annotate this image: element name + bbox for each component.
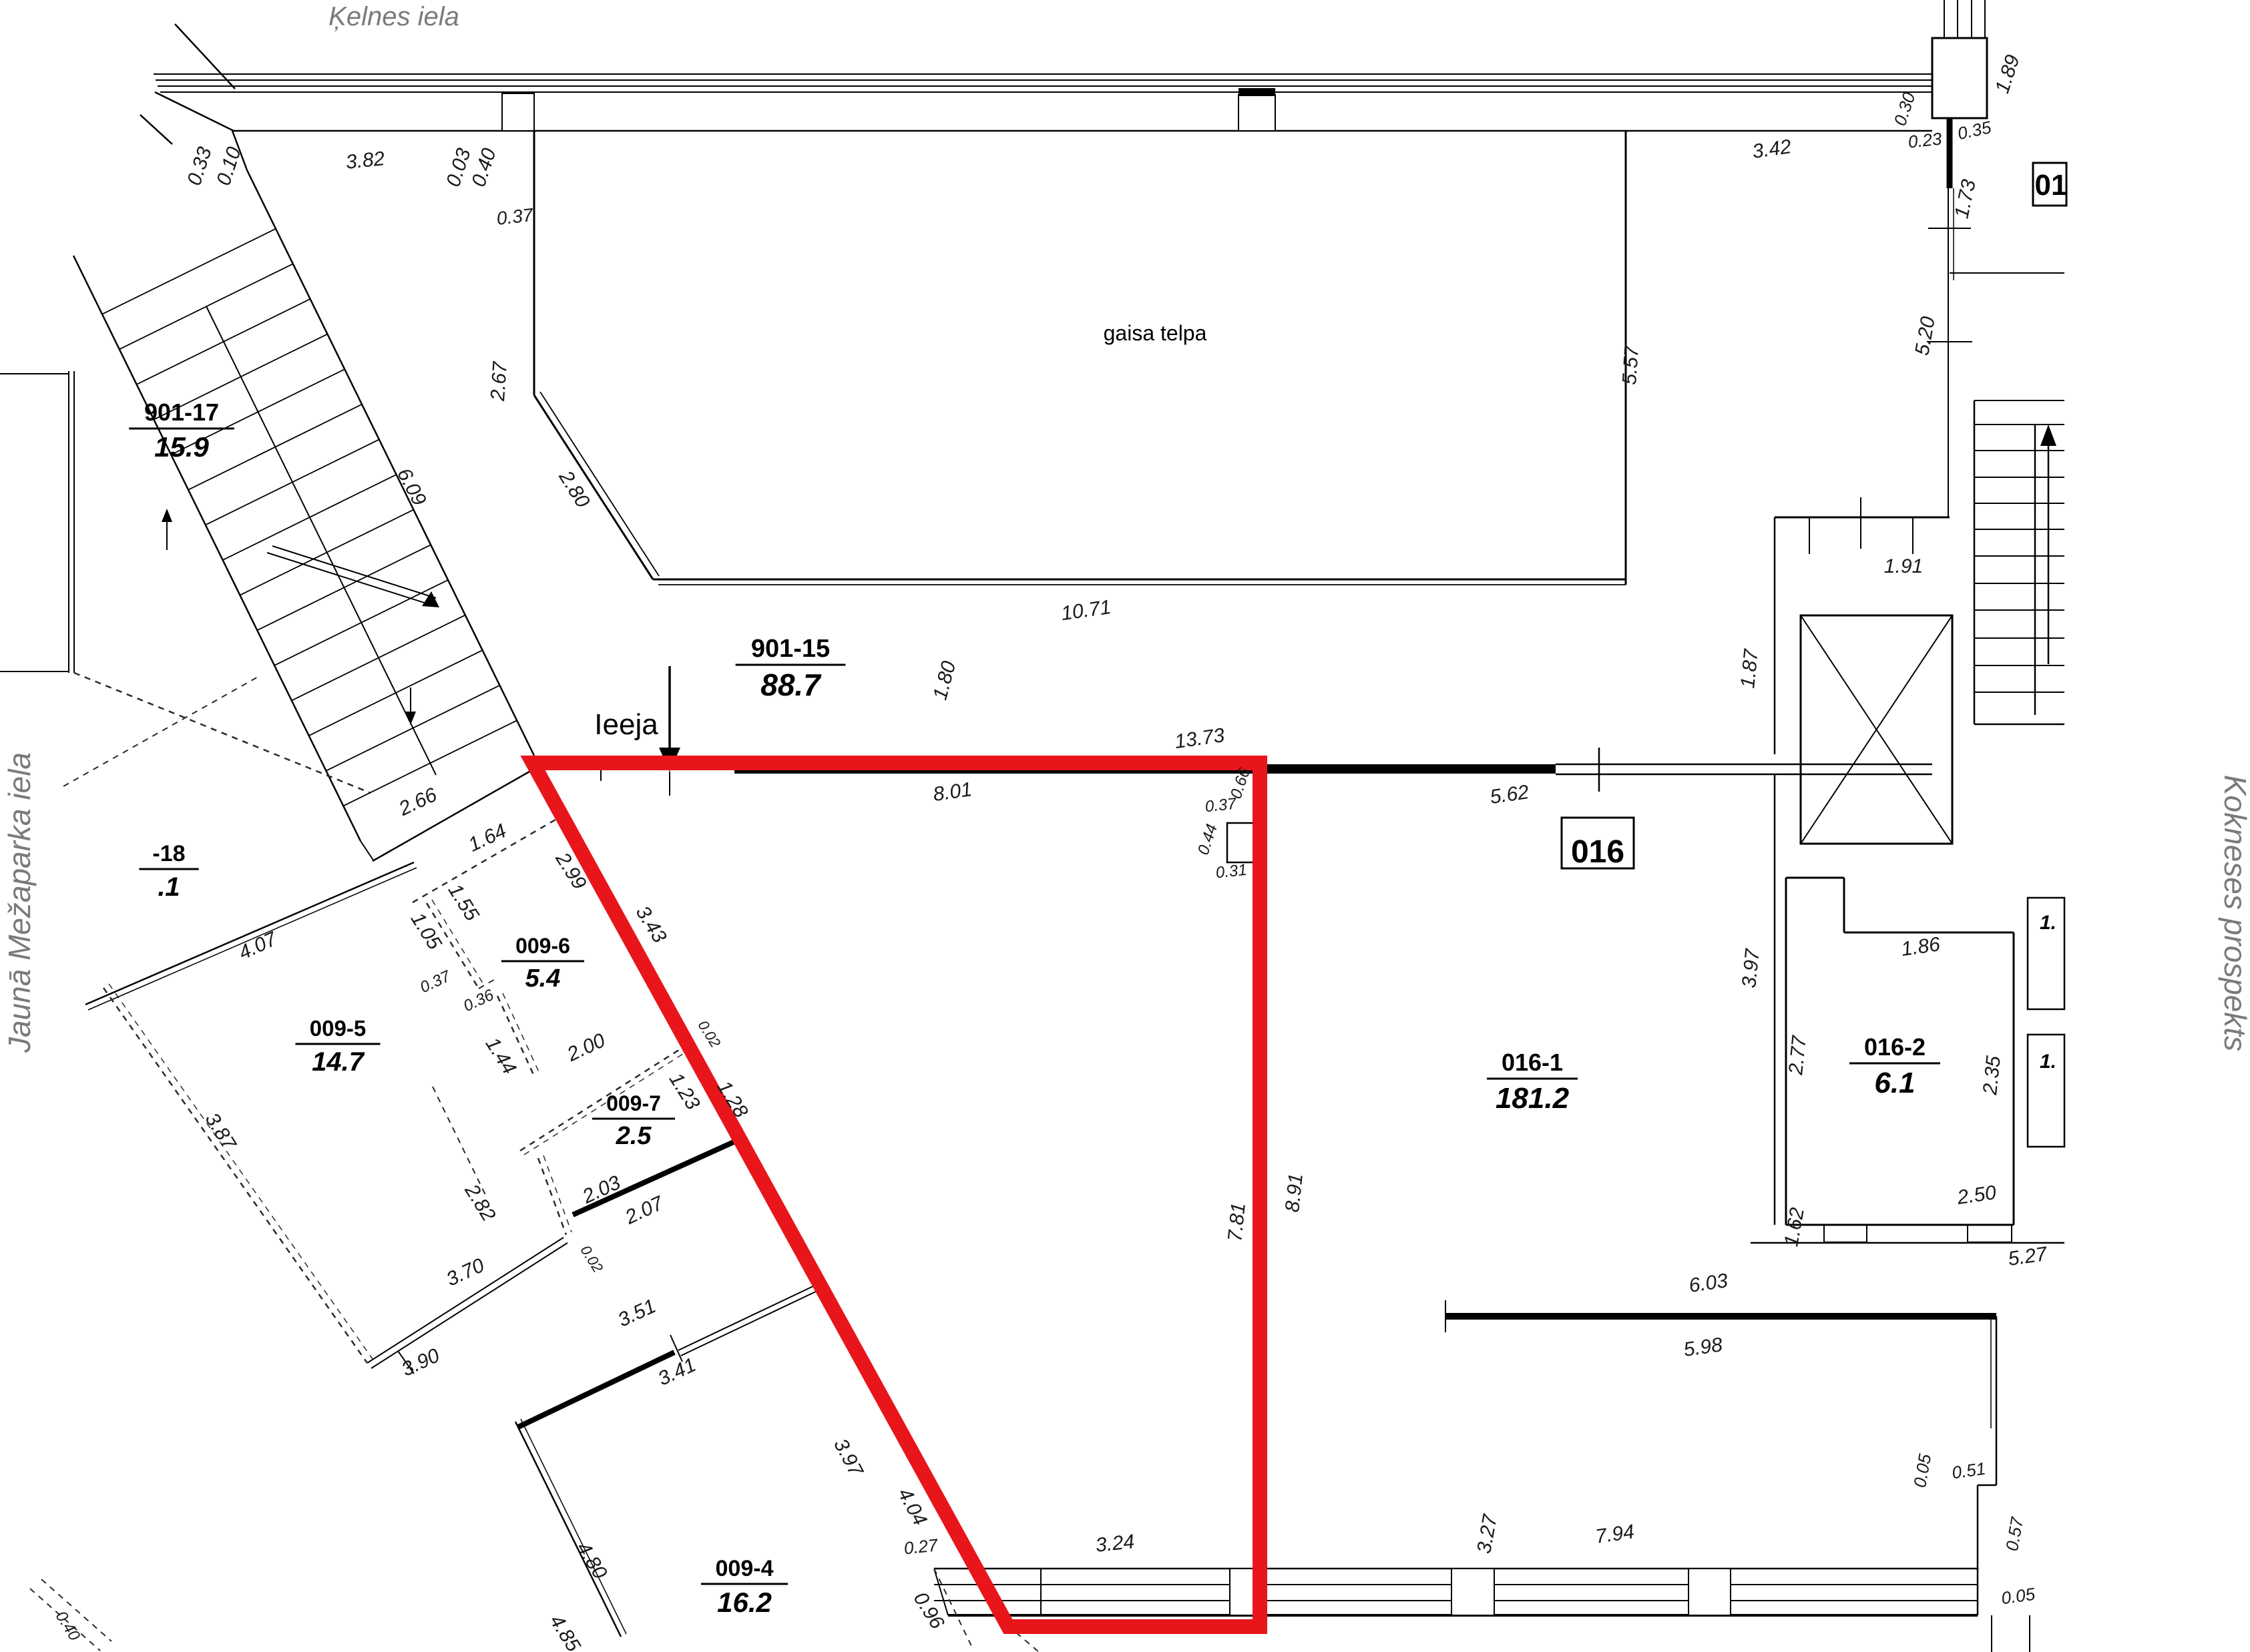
room-number-label-partial: 1.: [2040, 1051, 2056, 1073]
dimension-label: 1.91: [1884, 555, 1923, 577]
room-number-label: 009-7: [606, 1091, 661, 1115]
room-number-label: 901-15: [751, 635, 830, 663]
dimension-label: 0.31: [1215, 861, 1248, 882]
entrance-label: Ieeja: [594, 708, 658, 741]
dimension-label: 0.27: [903, 1535, 939, 1558]
room-area-label: 16.2: [717, 1587, 772, 1618]
street-name-top: Ķelnes iela: [328, 2, 459, 31]
room-area-label: 14.7: [312, 1047, 365, 1077]
dimension-label: 7.81: [1224, 1201, 1250, 1243]
dimension-label: 1.87: [1737, 647, 1763, 690]
room-number-label: 009-5: [310, 1016, 366, 1041]
dimension-label: 3.97: [1738, 947, 1764, 989]
dimension-label: 0.37: [495, 204, 535, 229]
dimension-label: 3.24: [1094, 1531, 1136, 1557]
room-number-label-partial: 1.: [2040, 912, 2056, 934]
dimension-label: 2.67: [487, 360, 511, 402]
dimension-label: 2.35: [1979, 1055, 2005, 1097]
floor-plan-canvas: 0.330.103.820.030.400.372.672.806.092.66…: [0, 0, 2250, 1652]
dimension-label: 3.82: [345, 148, 386, 174]
dimension-label: 0.23: [1907, 128, 1943, 152]
room-number-label: 016-1: [1502, 1049, 1563, 1076]
room-area-label: 88.7: [760, 667, 822, 702]
room-number-label: 009-6: [515, 934, 570, 958]
dimension-label: 0.37: [1204, 795, 1239, 816]
room-number-label: 901-17: [144, 398, 219, 426]
room-area-label: .1: [158, 872, 180, 902]
plan-background: [0, 0, 2250, 1652]
room-number-label: -18: [152, 841, 185, 866]
room-area-label: 6.1: [1874, 1067, 1915, 1099]
dimension-label: 2.77: [1785, 1034, 1811, 1077]
street-name-right: Kokneses prospekts: [2218, 775, 2250, 1051]
room-area-label: 5.4: [525, 965, 561, 993]
dimension-label: 5.57: [1618, 344, 1643, 386]
ref-box-016-label: 016: [1571, 834, 1624, 870]
ref-box-01-partial-label: 01: [2035, 169, 2068, 202]
room-area-label: 181.2: [1496, 1082, 1570, 1115]
void-space-label: gaisa telpa: [1104, 321, 1207, 345]
room-area-label: 15.9: [154, 431, 209, 463]
street-name-left: Jaunā Mežaparka iela: [2, 752, 37, 1053]
room-area-label: 2.5: [616, 1122, 652, 1150]
room-number-label: 009-4: [716, 1556, 774, 1581]
room-number-label: 016-2: [1864, 1033, 1926, 1061]
dimension-label: 8.91: [1281, 1172, 1307, 1213]
